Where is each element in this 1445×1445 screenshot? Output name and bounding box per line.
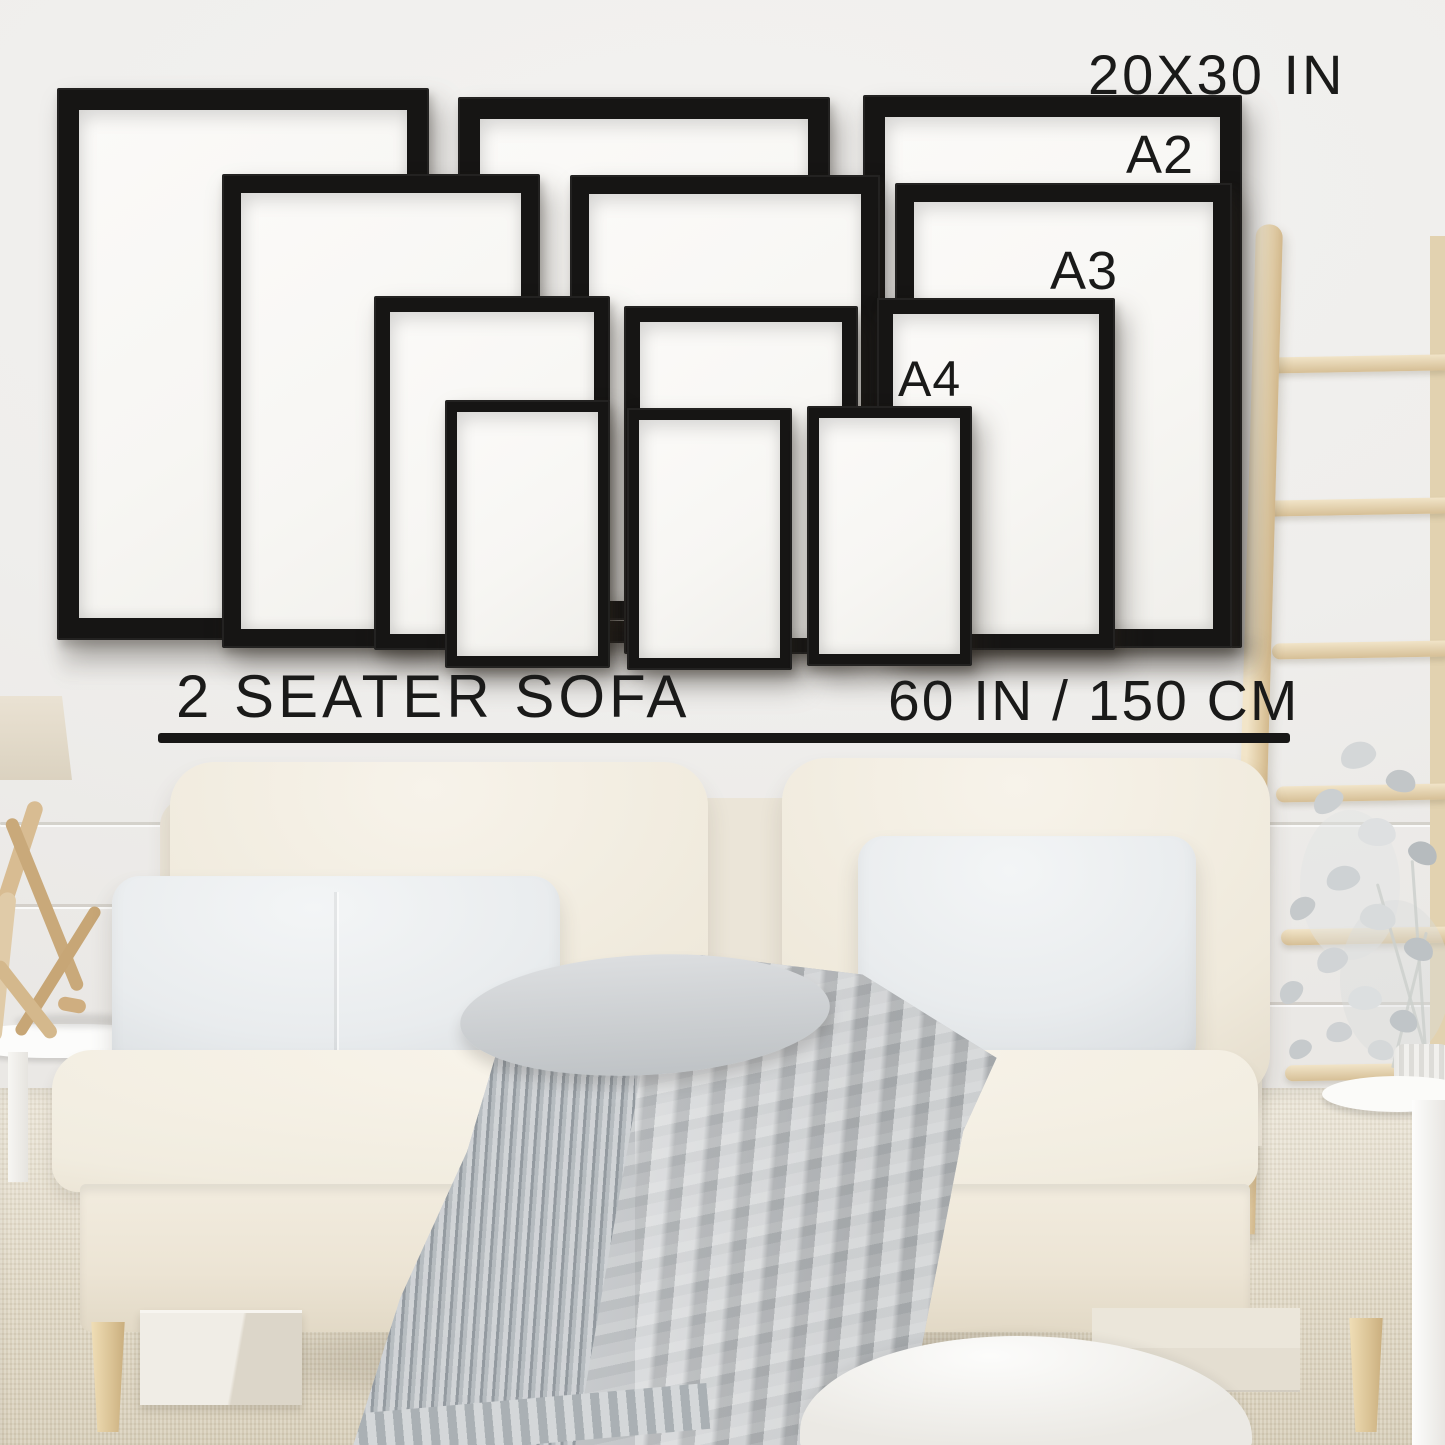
label-frame-size-20x30: 20X30 IN (1088, 42, 1346, 107)
label-sofa-width: 60 IN / 150 CM (888, 668, 1299, 734)
frame-a4-middle (627, 408, 792, 670)
label-frame-size-a3: A3 (1050, 240, 1118, 302)
frame-a4-middle-paper (639, 420, 780, 658)
frame-a4-left (445, 400, 610, 668)
pillow-seam (334, 892, 337, 1072)
frame-a4-right (807, 406, 972, 666)
side-table-right-pedestal (1412, 1100, 1445, 1445)
frame-a4-left-paper (457, 412, 598, 656)
frame-a4-right-paper (819, 418, 960, 654)
storage-box-under-sofa-left (140, 1310, 302, 1405)
living-room-size-guide-photo: 20X30 IN A2 A3 A4 2 SEATER SOFA 60 IN / … (0, 0, 1445, 1445)
measurement-underline (158, 733, 1290, 743)
label-frame-size-a2: A2 (1126, 124, 1194, 186)
side-table-left-leg-2 (8, 1052, 28, 1182)
label-sofa-type: 2 SEATER SOFA (176, 662, 690, 731)
plant-leaf (1348, 985, 1383, 1010)
storage-box-under-sofa-right-top (1092, 1308, 1300, 1350)
label-frame-size-a4: A4 (898, 350, 961, 408)
